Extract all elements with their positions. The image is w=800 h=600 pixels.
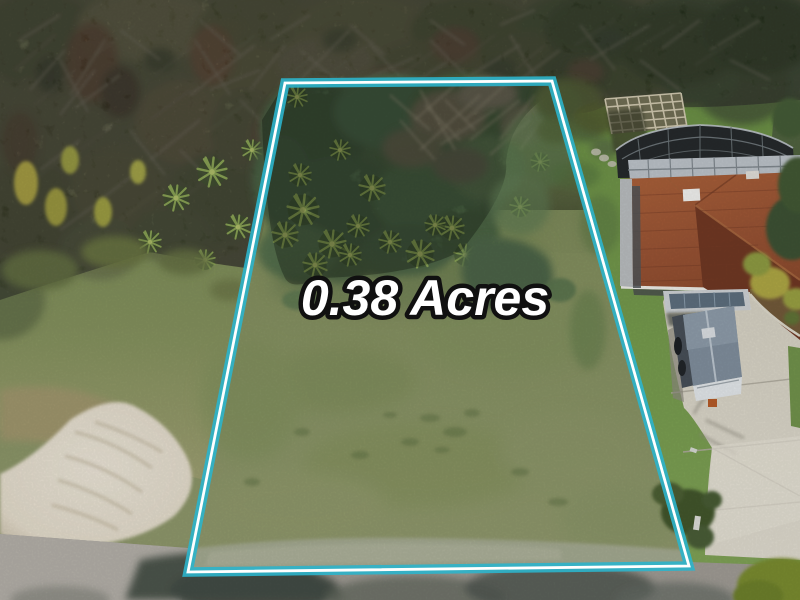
svg-text:0.38 Acres: 0.38 Acres [301, 270, 549, 326]
